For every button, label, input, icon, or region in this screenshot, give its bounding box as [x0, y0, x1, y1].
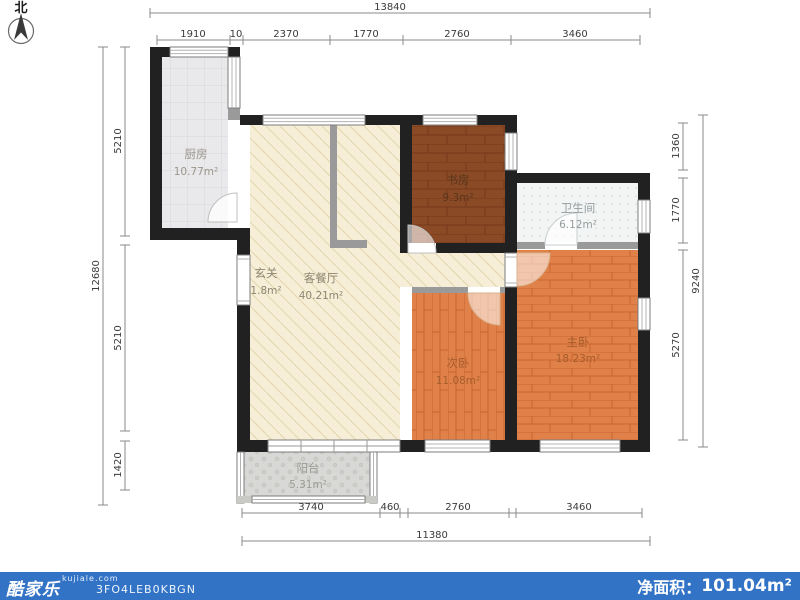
living-top-window	[263, 115, 365, 125]
dim-top-1: 10	[230, 29, 243, 40]
dim-bottom-2: 2760	[445, 502, 470, 513]
floorplan-page: 厨房 10.77m² 书房 9.3m² 卫生间 6.12m² 玄关 1.8m² …	[0, 0, 800, 600]
living-partition-vertical	[330, 125, 337, 247]
compass-needle-icon	[14, 13, 28, 40]
bedroom2-label: 次卧	[447, 356, 470, 370]
corridor-floor	[400, 253, 505, 287]
dim-top-2: 2370	[273, 29, 298, 40]
dim-top-0: 1910	[180, 29, 205, 40]
living-partition-stub	[330, 240, 367, 248]
dim-right-1: 1770	[671, 197, 682, 222]
entry-door	[237, 255, 250, 305]
dim-top-5: 3460	[562, 29, 587, 40]
master-area: 18.23m²	[556, 353, 601, 365]
balcony-label: 阳台	[297, 461, 320, 475]
net-area: 净面积： 101.04m²	[637, 572, 792, 600]
compass: 北	[9, 1, 34, 44]
bathroom-side-window	[638, 200, 650, 233]
master-label: 主卧	[567, 335, 590, 349]
master-doorway	[505, 253, 517, 287]
kitchen-wall-block	[228, 108, 240, 120]
kitchen-label: 厨房	[185, 147, 208, 161]
net-area-value: 101.04m²	[701, 576, 792, 596]
entry-label: 玄关	[255, 266, 278, 280]
net-area-label: 净面积：	[637, 574, 701, 598]
dim-top-4: 2760	[444, 29, 469, 40]
kitchen-area: 10.77m²	[174, 166, 219, 178]
dim-bottom-3: 3460	[566, 502, 591, 513]
dim-bottom-0: 3740	[298, 502, 323, 513]
study-side-window	[505, 133, 517, 170]
plan-code: 3FO4LEB0KBGN	[96, 583, 196, 596]
kitchen-side-window	[228, 57, 240, 108]
dim-top-3: 1770	[353, 29, 378, 40]
dim-left-1: 5210	[113, 325, 124, 350]
kitchen-top-window	[170, 47, 228, 57]
balcony-area: 5.31m²	[289, 479, 327, 491]
dim-top-total: 13840	[374, 2, 406, 13]
dim-right-0: 1360	[671, 133, 682, 158]
bathroom-label: 卫生间	[561, 201, 596, 215]
dim-left-total: 12680	[91, 260, 102, 292]
entry-area: 1.8m²	[250, 285, 281, 297]
living-area: 40.21m²	[299, 290, 344, 302]
balcony-sliding-door	[268, 440, 400, 452]
dim-right-total: 9240	[691, 268, 702, 293]
balcony-left-rail	[237, 452, 244, 503]
dim-bottom-1: 460	[380, 502, 399, 513]
floorplan-canvas: 厨房 10.77m² 书房 9.3m² 卫生间 6.12m² 玄关 1.8m² …	[0, 0, 800, 572]
dim-right-2: 5270	[671, 332, 682, 357]
bedroom2-bottom-window	[425, 440, 490, 452]
footer-bar: 酷家乐 kujiale.com 3FO4LEB0KBGN 净面积： 101.04…	[0, 572, 800, 600]
living-label: 客餐厅	[304, 271, 339, 285]
master-bottom-window	[540, 440, 620, 452]
dim-left-0: 5210	[113, 128, 124, 153]
study-label: 书房	[447, 173, 470, 187]
dim-left-2: 1420	[113, 452, 124, 477]
balcony-right-rail	[370, 452, 377, 503]
site-url: kujiale.com	[62, 574, 119, 583]
study-area: 9.3m²	[442, 192, 473, 204]
dim-bottom-total: 11380	[416, 530, 448, 541]
master-side-window	[638, 298, 650, 330]
study-top-window	[423, 115, 477, 125]
kujiale-logo: 酷家乐	[6, 575, 60, 600]
bathroom-area: 6.12m²	[559, 219, 597, 231]
bedroom2-area: 11.08m²	[436, 375, 481, 387]
